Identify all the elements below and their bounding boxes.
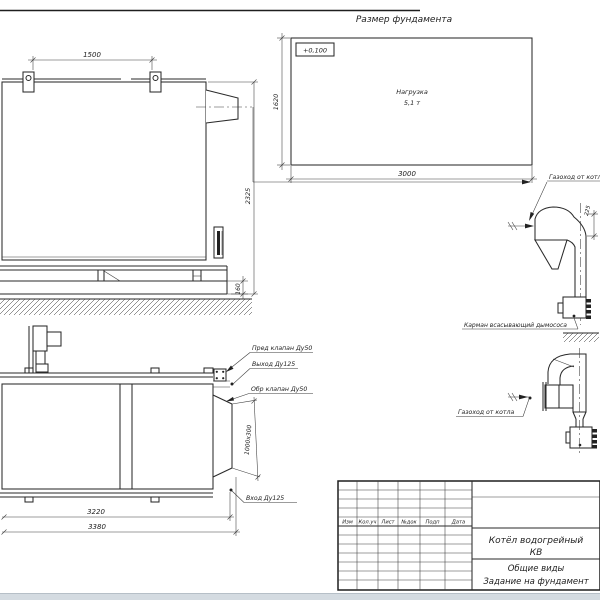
- rail-lug: [151, 368, 159, 373]
- burner-motor: [47, 332, 61, 346]
- leader-dot: [573, 315, 576, 318]
- flange-bolt: [586, 299, 591, 303]
- arrowhead: [529, 212, 534, 221]
- boiler-plan-view: 1000х300 Пред клапан Ду50 Выход Ду125 Об…: [0, 326, 313, 536]
- dim-length-inner: 3220: [87, 508, 105, 516]
- arrowhead: [522, 180, 531, 185]
- dim-lug-span: 1500: [83, 51, 101, 59]
- tb-doc-subject: Задание на фундамент: [483, 577, 589, 587]
- arrowhead: [226, 397, 234, 402]
- burner-foot: [36, 364, 48, 372]
- dim-foundation-height: 1620: [272, 94, 280, 111]
- tb-col-koluch: Кол.уч: [359, 520, 377, 526]
- flange-bolt: [592, 435, 597, 439]
- flange-bolt: [592, 429, 597, 433]
- dim-opening: 1000х300: [244, 424, 254, 455]
- burner-body: [33, 326, 47, 351]
- flange-bolt: [592, 445, 597, 449]
- tb-col-izm: Изм: [342, 520, 353, 526]
- level-mark: +0,100: [303, 47, 327, 55]
- flange-bolt: [586, 316, 591, 320]
- tb-product-name: Котёл водогрейный: [489, 536, 584, 546]
- flue-opening: [213, 468, 232, 477]
- dim-frame-height: 160: [235, 283, 242, 295]
- duct-label: Газоход от котла: [458, 409, 514, 416]
- boiler-body: [2, 82, 206, 260]
- flange-bolt: [592, 440, 597, 444]
- tb-doc-view: Общие виды: [508, 564, 565, 574]
- flange-bolt: [586, 305, 591, 309]
- load-value: 5,1 т: [404, 99, 420, 107]
- floor-hatch: [563, 333, 599, 342]
- flue-nozzle: [206, 90, 238, 123]
- drawing-canvas: 1500 160: [0, 0, 600, 600]
- safety-valve-flange: [214, 369, 226, 381]
- tb-col-podp: Подп: [425, 520, 440, 526]
- foundation-title: Размер фундамента: [356, 15, 452, 25]
- rail-lug: [25, 497, 33, 502]
- title-block: Изм Кол.уч Лист №док Подп Дата Котёл вод…: [338, 481, 600, 590]
- dim-total-height: 2325: [244, 188, 252, 205]
- callout-outlet: Выход Ду125: [252, 361, 295, 368]
- arrowhead: [525, 224, 534, 229]
- load-label: Нагрузка: [396, 88, 428, 96]
- duct-label: Газоход от котла: [549, 174, 600, 181]
- leader-dot: [230, 489, 233, 492]
- boiler-plan-body: [2, 384, 213, 489]
- pocket-cone: [535, 240, 567, 269]
- page-edge-strip: [0, 594, 600, 600]
- tb-product-code: КВ: [530, 548, 543, 558]
- dim-foundation-width: 3000: [398, 170, 416, 178]
- rail-lug: [151, 497, 159, 502]
- gas-duct-detail-upper: Газоход от котла 225 Карман всасывающий …: [462, 174, 600, 342]
- tb-col-data: Дата: [451, 520, 465, 526]
- gas-duct-detail-lower: Газоход от котла: [456, 348, 597, 455]
- callout-check-valve: Обр клапан Ду50: [251, 385, 307, 393]
- pocket-label: Карман всасывающий дымососа: [464, 322, 567, 329]
- ground-hatch: [0, 299, 252, 315]
- foundation-plan: Размер фундамента +0,100 Нагрузка 5,1 т …: [272, 15, 537, 183]
- callout-safety-valve: Пред клапан Ду50: [252, 345, 312, 352]
- flange-bolt: [586, 310, 591, 314]
- callout-inlet: Вход Ду125: [246, 495, 284, 502]
- dim-duct-offset: 225: [584, 205, 592, 217]
- tb-col-list: Лист: [380, 520, 395, 526]
- tb-col-ndok: №док: [400, 520, 417, 526]
- arrowhead: [519, 395, 528, 400]
- dim-length-outer: 3380: [88, 523, 106, 531]
